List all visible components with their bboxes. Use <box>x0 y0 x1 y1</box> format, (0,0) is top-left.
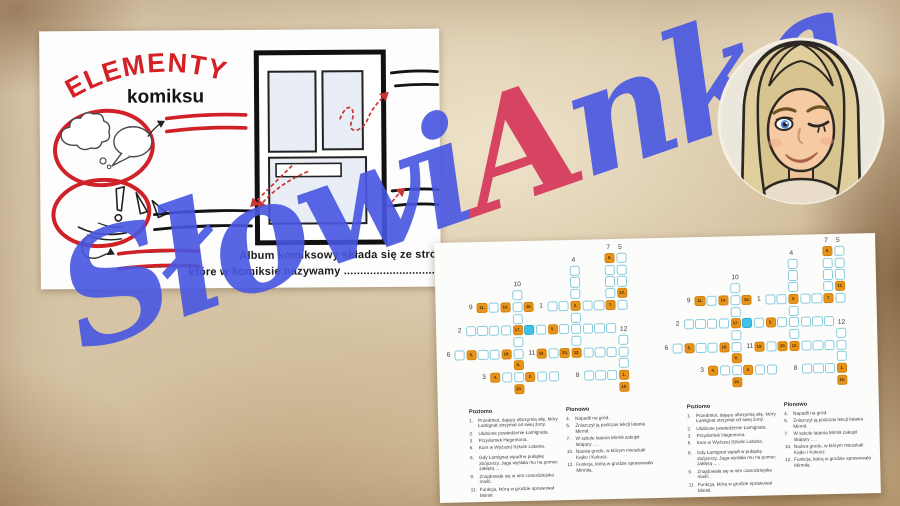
crossword-cell <box>731 365 741 375</box>
thought-bubble-icon <box>61 113 110 150</box>
crossword-cell <box>730 295 740 305</box>
clue-text: Gdy Łamignat wpadł w pułapkę zbójcerzy, … <box>479 453 565 472</box>
crossword-cell <box>571 312 581 322</box>
clue-text: Funkcja, którą w grodzie sprawował Mirmi… <box>698 480 784 493</box>
poziomo-heading: Poziomo <box>469 407 564 415</box>
crossword-cell-numbered: 1. <box>619 370 629 380</box>
clue-column-pionowo: Pionowo 4.Napadli na gród.5.Zniszczył ją… <box>566 405 663 475</box>
crossword-worksheet-panel: 9.13.11.14.15.3.7.17.5.6.18.19.20.12.8.4… <box>434 233 881 503</box>
clue-number: 7. <box>784 431 793 443</box>
crossword-cell <box>489 326 499 336</box>
crossword-cell <box>548 348 558 358</box>
clue-text: Ulubione powiedzenie Łamignata. <box>478 429 564 437</box>
poziomo-heading: Poziomo <box>687 402 782 410</box>
crossword-grid: 9.13.11.14.15.3.7.17.5.6.18.19.20.12.8.4… <box>452 253 632 398</box>
clue-text: Napadli na gród. <box>793 408 879 416</box>
crossword-cell <box>789 329 799 339</box>
crossword-clue-number-label: 10 <box>514 282 521 289</box>
clue-column-poziomo: Poziomo 1.Przedmiot, dający olbrzymią si… <box>469 407 566 500</box>
crossword-cell <box>777 294 787 304</box>
crossword-cell-numbered: 9. <box>604 253 614 263</box>
clue-item: 1.Przedmiot, dający olbrzymią siłę, któr… <box>469 416 564 430</box>
clue-item: 6.Kurs w Wyższej Szkole Latania. <box>470 443 565 451</box>
crossword-clue-number-label: 11 <box>746 343 753 350</box>
crossword-cell-numbered: 8. <box>513 360 523 370</box>
watermark-accent-letter: A <box>424 46 597 252</box>
clue-item: 5.Zniszczył ją podczas lekcji latania Mi… <box>784 416 879 430</box>
crossword-cell <box>606 323 616 333</box>
crossword-clue-number-label: 11 <box>528 350 535 357</box>
clue-number: 8. <box>470 455 479 472</box>
crossword-clue-number-label: 3 <box>482 375 486 382</box>
bitmoji-avatar-winking-woman <box>716 36 886 206</box>
crossword-cell <box>767 364 777 374</box>
crossword-cell-numbered: 10. <box>514 384 524 394</box>
crossword-cell-numbered: 6. <box>466 350 476 360</box>
crossword-cell-numbered: 3. <box>570 301 580 311</box>
crossword-cell <box>823 281 833 291</box>
crossword-cell <box>619 358 629 368</box>
crossword-cell <box>513 349 523 359</box>
clue-text: Przedmiot, dający olbrzymią siłę, który … <box>696 411 782 424</box>
clue-column-poziomo: Poziomo 1.Przedmiot, dający olbrzymią si… <box>687 402 784 495</box>
crossword-clue-number-label: 1 <box>539 303 543 310</box>
crossword-cell-numbered: 13. <box>835 281 845 291</box>
crossword-cell <box>835 293 845 303</box>
crossword-cell <box>605 265 615 275</box>
crossword-clue-number-label: 8 <box>576 373 580 380</box>
crossword-cell <box>466 326 476 336</box>
crossword-cell <box>618 335 628 345</box>
crossword-cell <box>754 318 764 328</box>
clue-text: Kurs w Wyższej Szkole Latania. <box>697 438 783 446</box>
crossword-cell-numbered: 16. <box>837 374 847 384</box>
crossword-clue-number-label: 10 <box>731 275 738 282</box>
clue-number: 7. <box>567 436 576 448</box>
crossword-cell-numbered: 14. <box>718 295 728 305</box>
crossword-cell <box>571 324 581 334</box>
crossword-cell <box>824 340 834 350</box>
crossword-cell <box>823 269 833 279</box>
crossword-cell-numbered: 8. <box>731 353 741 363</box>
crossword-cell-numbered: 12. <box>572 347 582 357</box>
crossword-cell <box>455 350 465 360</box>
clue-item: 6.Kurs w Wyższej Szkole Latania. <box>688 438 783 446</box>
crossword-cell <box>537 372 547 382</box>
crossword-cell <box>696 342 706 352</box>
crossword-cell-numbered: 19. <box>536 348 546 358</box>
clue-item: 12.Funkcja, którą w grodzie sprawowała M… <box>567 460 662 474</box>
clue-number: 5. <box>566 423 575 435</box>
crossword-cell <box>813 363 823 373</box>
crossword-cell <box>489 302 499 312</box>
clue-text: Przydomek Hegemona. <box>696 431 782 439</box>
crossword-clue-number-label: 6 <box>447 352 451 359</box>
clue-item: 10.Nazwa grodu, w którym mieszkali Kajko… <box>567 447 662 461</box>
crossword-cell <box>825 363 835 373</box>
crossword-cell-numbered: 19. <box>754 341 764 351</box>
crossword-cell <box>800 293 810 303</box>
crossword-grid: 9.13.11.14.15.3.7.17.5.6.18.19.20.12.8.4… <box>670 246 850 391</box>
crossword-cell-numbered: 20. <box>560 348 570 358</box>
answer-blank-lines-black-right-top <box>391 71 437 86</box>
crossword-cell <box>836 328 846 338</box>
clue-number: 4. <box>566 415 575 421</box>
clue-item: 7.W szkole latania Mirmił zakupił latają… <box>784 429 879 443</box>
crossword-cell-numbered: 5. <box>548 324 558 334</box>
clue-text: W szkole latania Mirmił zakupił latający… <box>576 434 662 447</box>
crossword-clue-number-label: 12 <box>838 320 845 327</box>
poziomo-list: 1.Przedmiot, dający olbrzymią siłę, któr… <box>469 416 566 499</box>
clue-item: 9.Znajdowała się w nim czarodziejska maś… <box>688 467 783 481</box>
clue-text: Funkcja, którą w grodzie sprawował Mirmi… <box>480 485 566 498</box>
crossword-clue-number-label: 2 <box>676 322 680 329</box>
answer-blank-lines-black-right-bottom <box>392 189 438 206</box>
crossword-cell <box>616 264 626 274</box>
avatar-blush-left <box>768 139 782 147</box>
red-dashed-arrow-right <box>385 189 404 213</box>
clue-item: 10.Nazwa grodu, w którym mieszkali Kajko… <box>785 442 880 456</box>
crossword-cell <box>570 265 580 275</box>
crossword-cell-numbered: 6. <box>684 343 694 353</box>
clue-text: Znajdowała się w nim czarodziejska maść. <box>479 472 565 485</box>
clue-text: Nazwa grodu, w którym mieszkali Kajko i … <box>794 442 880 455</box>
clue-number: 1. <box>687 413 696 425</box>
crossword-cell <box>731 342 741 352</box>
pionowo-heading: Pionowo <box>566 405 661 413</box>
clue-text: Funkcja, którą w grodzie sprawowała Mirm… <box>794 455 880 468</box>
crossword-cell <box>559 301 569 311</box>
crossword-cell <box>607 347 617 357</box>
crossword-cell <box>513 337 523 347</box>
clue-text: Przedmiot, dający olbrzymią siłę, który … <box>478 416 564 429</box>
crossword-cell-highlighted <box>524 325 534 335</box>
exclamation-mark-icon <box>116 187 124 211</box>
clue-number: 9. <box>470 474 479 486</box>
clue-text: Ulubione powiedzenie Łamignata. <box>696 424 782 432</box>
crossword-cell <box>512 302 522 312</box>
answer-blank-lines-red-top <box>167 114 246 131</box>
answer-blank-lines-red-bottom <box>119 250 199 269</box>
crossword-cell-numbered: 18. <box>501 349 511 359</box>
crossword-cell-numbered: 5. <box>765 317 775 327</box>
crossword-cell <box>777 317 787 327</box>
clue-number: 4. <box>784 410 793 416</box>
crossword-cell <box>502 372 512 382</box>
album-sentence-line1: Album komiksowy składa się ze stron, <box>236 249 451 263</box>
narration-box <box>276 163 341 176</box>
crossword-cell <box>547 301 557 311</box>
crossword-cell-numbered: 11. <box>695 296 705 306</box>
crossword-clue-number-label: 4 <box>571 258 575 265</box>
crossword-cell-highlighted <box>742 318 752 328</box>
crossword-clue-number-label: 8 <box>794 366 798 373</box>
crossword-cell <box>695 319 705 329</box>
pionowo-list: 4.Napadli na gród.5.Zniszczył ją podczas… <box>784 408 880 468</box>
crossword-clue-number-label: 7 <box>824 238 828 245</box>
crossword-cell <box>789 305 799 315</box>
clue-number: 3. <box>470 438 479 444</box>
clue-item: 12.Funkcja, którą w grodzie sprawowała M… <box>785 455 880 469</box>
crossword-cell <box>730 307 740 317</box>
crossword-cell-numbered: 18. <box>719 342 729 352</box>
speech-balloon-icon <box>114 127 152 157</box>
clue-item: 8.Gdy Łamignat wpadł w pułapkę zbójcerzy… <box>470 453 565 472</box>
crossword-cell-numbered: 15. <box>524 302 534 312</box>
parchment-background: ELEMENTY komiksu <box>0 0 900 506</box>
crossword-cell <box>834 246 844 256</box>
crossword-cell <box>813 340 823 350</box>
clue-text: Kurs w Wyższej Szkole Latania. <box>479 443 565 451</box>
crossword-cell-numbered: 7. <box>823 293 833 303</box>
clue-text: W szkole latania Mirmił zakupił latający… <box>793 429 879 442</box>
crossword-cell-numbered: 14. <box>500 302 510 312</box>
crossword-cell <box>836 351 846 361</box>
clue-number: 11. <box>471 487 480 499</box>
crossword-cell <box>594 300 604 310</box>
avatar-blush-right <box>820 137 834 145</box>
crossword-clue-number-label: 5 <box>618 245 622 252</box>
crossword-clue-number-label: 4 <box>789 251 793 258</box>
crossword-cell <box>707 319 717 329</box>
crossword-cell <box>802 363 812 373</box>
crossword-cell-numbered: 10. <box>732 377 742 387</box>
crossword-cell-numbered: 7. <box>606 300 616 310</box>
crossword-cell <box>617 299 627 309</box>
clue-number: 8. <box>688 450 697 467</box>
clue-number: 12. <box>567 462 576 474</box>
crossword-cell-numbered: 12. <box>789 340 799 350</box>
pionowo-heading: Pionowo <box>784 400 879 408</box>
crossword-clue-number-label: 3 <box>700 368 704 375</box>
crossword-cell <box>801 317 811 327</box>
comic-page-diagram <box>256 52 384 243</box>
crossword-cell <box>755 365 765 375</box>
crossword-clue-number-label: 12 <box>620 327 627 334</box>
crossword-cell-numbered: 11. <box>477 303 487 313</box>
clue-text: Funkcja, którą w grodzie sprawowała Mirm… <box>576 460 662 473</box>
clue-text: Znajdowała się w nim czarodziejska maść. <box>697 467 783 480</box>
answer-blank-lines-black-middle <box>154 210 251 229</box>
crossword-cell <box>706 295 716 305</box>
clue-item: 11.Funkcja, którą w grodzie sprawował Mi… <box>689 480 784 494</box>
crossword-cell <box>836 339 846 349</box>
crossword-cell <box>824 316 834 326</box>
crossword-clue-number-label: 7 <box>606 245 610 252</box>
crossword-cell-numbered: 20. <box>778 341 788 351</box>
crossword-cell <box>731 330 741 340</box>
crossword-cell <box>765 294 775 304</box>
crossword-cell-numbered: 4. <box>708 366 718 376</box>
clue-number: 6. <box>688 440 697 446</box>
crossword-cell <box>514 372 524 382</box>
clue-number: 2. <box>469 431 478 437</box>
clue-item: 11.Funkcja, którą w grodzie sprawował Mi… <box>471 485 566 499</box>
crossword-cell <box>834 257 844 267</box>
clue-number: 10. <box>785 444 794 456</box>
crossword-cell <box>720 365 730 375</box>
crossword-clue-number-label: 6 <box>664 345 668 352</box>
crossword-cell <box>501 326 511 336</box>
clue-text: Napadli na gród. <box>575 413 661 421</box>
crossword-cell <box>605 288 615 298</box>
crossword-cell <box>801 340 811 350</box>
crossword-cell <box>594 323 604 333</box>
pionowo-list: 4.Napadli na gród.5.Zniszczył ją podczas… <box>566 413 662 473</box>
poziomo-list: 1.Przedmiot, dający olbrzymią siłę, któr… <box>687 411 784 494</box>
crossword-cell <box>766 341 776 351</box>
crossword-cell-numbered: 17. <box>512 325 522 335</box>
clue-number: 11. <box>689 482 698 494</box>
clue-number: 2. <box>687 426 696 432</box>
crossword-cell <box>719 319 729 329</box>
crossword-cell <box>730 283 740 293</box>
crossword-cell <box>570 277 580 287</box>
crossword-cell <box>536 325 546 335</box>
crossword-cell <box>605 276 615 286</box>
clue-text: Zniszczył ją podczas lekcji latania Mirm… <box>793 416 879 429</box>
crossword-cell <box>812 316 822 326</box>
clue-number: 5. <box>784 418 793 430</box>
crossword-cell-numbered: 3. <box>788 294 798 304</box>
crossword-cell-numbered: 1. <box>837 363 847 373</box>
clue-item: 9.Znajdowała się w nim czarodziejska maś… <box>470 472 565 486</box>
clue-number: 10. <box>567 449 576 461</box>
crossword-cell <box>584 370 594 380</box>
worksheet-subtitle: komiksu <box>127 86 204 108</box>
crossword-cell <box>559 324 569 334</box>
crossword-clue-number-label: 2 <box>458 329 462 336</box>
crossword-cell <box>835 269 845 279</box>
crossword-cell <box>583 347 593 357</box>
crossword-cell <box>788 258 798 268</box>
crossword-cell <box>618 346 628 356</box>
comic-elements-worksheet-card: ELEMENTY komiksu <box>39 29 441 290</box>
crossword-cell <box>549 371 559 381</box>
crossword-cell-numbered: 15. <box>742 295 752 305</box>
clue-text: Przydomek Hegemona. <box>479 436 565 444</box>
clue-text: Gdy Łamignat wpadł w pułapkę zbójcerzy, … <box>697 448 783 467</box>
clue-text: Zniszczył ją podczas lekcji latania Mirm… <box>575 421 661 434</box>
crossword-cell <box>512 314 522 324</box>
clue-number: 12. <box>785 457 794 469</box>
crossword-cell <box>477 326 487 336</box>
crossword-cell <box>788 270 798 280</box>
crossword-clue-number-label: 9 <box>687 298 691 305</box>
crossword-cell <box>823 258 833 268</box>
clue-item: 1.Przedmiot, dający olbrzymią siłę, któr… <box>687 411 782 425</box>
crossword-cell <box>571 336 581 346</box>
clue-item: 5.Zniszczył ją podczas lekcji latania Mi… <box>566 421 661 435</box>
crossword-cell-numbered: 2. <box>743 365 753 375</box>
crossword-cell <box>583 324 593 334</box>
clue-item: 7.W szkole latania Mirmił zakupił latają… <box>567 434 662 448</box>
crossword-cell <box>570 289 580 299</box>
crossword-cell <box>595 370 605 380</box>
crossword-cell-numbered: 16. <box>619 381 629 391</box>
crossword-cell <box>616 253 626 263</box>
crossword-clue-number-label: 5 <box>836 238 840 245</box>
clue-number: 9. <box>688 469 697 481</box>
black-arrow-oval1 <box>148 122 164 137</box>
crossword-cell <box>582 300 592 310</box>
crossword-cell <box>788 282 798 292</box>
clue-number: 1. <box>469 418 478 430</box>
crossword-cell <box>595 347 605 357</box>
clue-item: 8.Gdy Łamignat wpadł w pułapkę zbójcerzy… <box>688 448 783 467</box>
crossword-cell <box>812 293 822 303</box>
clue-number: 3. <box>687 433 696 439</box>
crossword-cell-numbered: 17. <box>730 318 740 328</box>
crossword-clue-number-label: 1 <box>757 296 761 303</box>
crossword-cell <box>789 317 799 327</box>
crossword-cell <box>512 290 522 300</box>
crossword-cell <box>684 319 694 329</box>
clue-number: 6. <box>470 445 479 451</box>
crossword-cell <box>490 349 500 359</box>
crossword-cell-numbered: 9. <box>822 246 832 256</box>
crossword-clue-number-label: 9 <box>469 305 473 312</box>
clue-text: Nazwa grodu, w którym mieszkali Kajko i … <box>576 447 662 460</box>
clue-column-pionowo: Pionowo 4.Napadli na gród.5.Zniszczył ją… <box>784 400 881 470</box>
crossword-cell-numbered: 2. <box>525 372 535 382</box>
crossword-cell <box>607 370 617 380</box>
crossword-cell <box>478 349 488 359</box>
crossword-cell <box>617 276 627 286</box>
crossword-cell-numbered: 13. <box>617 288 627 298</box>
crossword-cell-numbered: 4. <box>490 373 500 383</box>
crossword-cell <box>672 343 682 353</box>
crossword-cell <box>708 342 718 352</box>
